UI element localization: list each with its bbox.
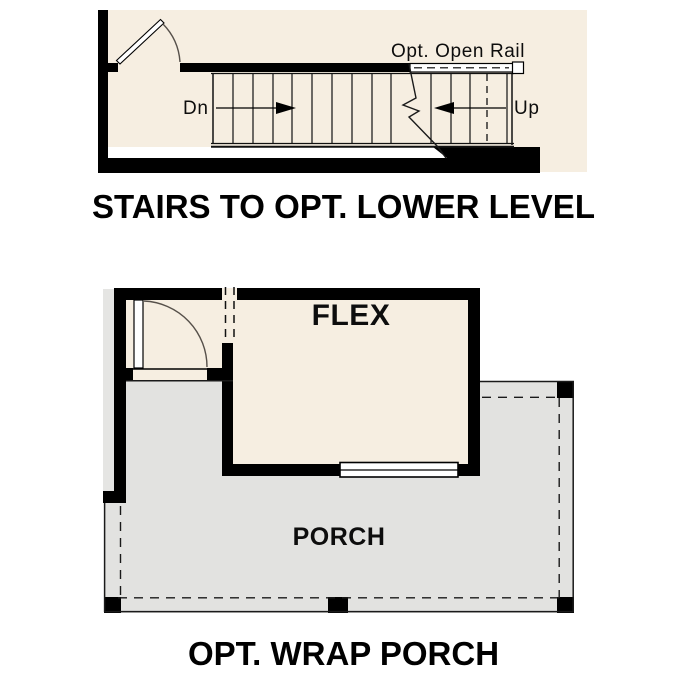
stairs-left-wall (98, 10, 108, 173)
porch-caption: OPT. WRAP PORCH (0, 636, 687, 672)
up-label: Up (514, 99, 540, 118)
porch-post-bottom-right (557, 597, 574, 613)
stairs-door-jamb (108, 63, 118, 72)
flex-bottom-wall-left (222, 464, 340, 476)
vestibule-floor (126, 288, 233, 380)
porch-post-bottom-left (104, 597, 121, 613)
porch-post-bottom-middle (328, 597, 348, 613)
porch-right-area (480, 382, 574, 613)
stairs-bottom-wall (98, 158, 540, 173)
vestibule-bottom-wall-right (207, 368, 233, 380)
plan-left-wall (114, 288, 126, 491)
porch-post-top-right (557, 382, 574, 398)
plan-left-wall-foot (103, 491, 126, 503)
flex-room-label: FLEX (222, 301, 480, 331)
stairs-landing (108, 147, 447, 158)
porch-room-label: PORCH (239, 525, 439, 550)
plan-top-wall-left (114, 288, 222, 300)
stairs-top-wall (180, 63, 410, 72)
stairs-caption: STAIRS TO OPT. LOWER LEVEL (0, 189, 687, 225)
porch-left-area (126, 381, 222, 613)
vestibule-bottom-wall-left (114, 368, 133, 380)
porch-left-strip (103, 289, 114, 491)
floorplan-canvas: Opt. Open Rail Dn Up STAIRS TO OPT. LOWE… (0, 0, 687, 687)
open-rail-label: Opt. Open Rail (391, 42, 525, 61)
flex-left-wall (222, 343, 233, 476)
down-label: Dn (183, 99, 209, 118)
